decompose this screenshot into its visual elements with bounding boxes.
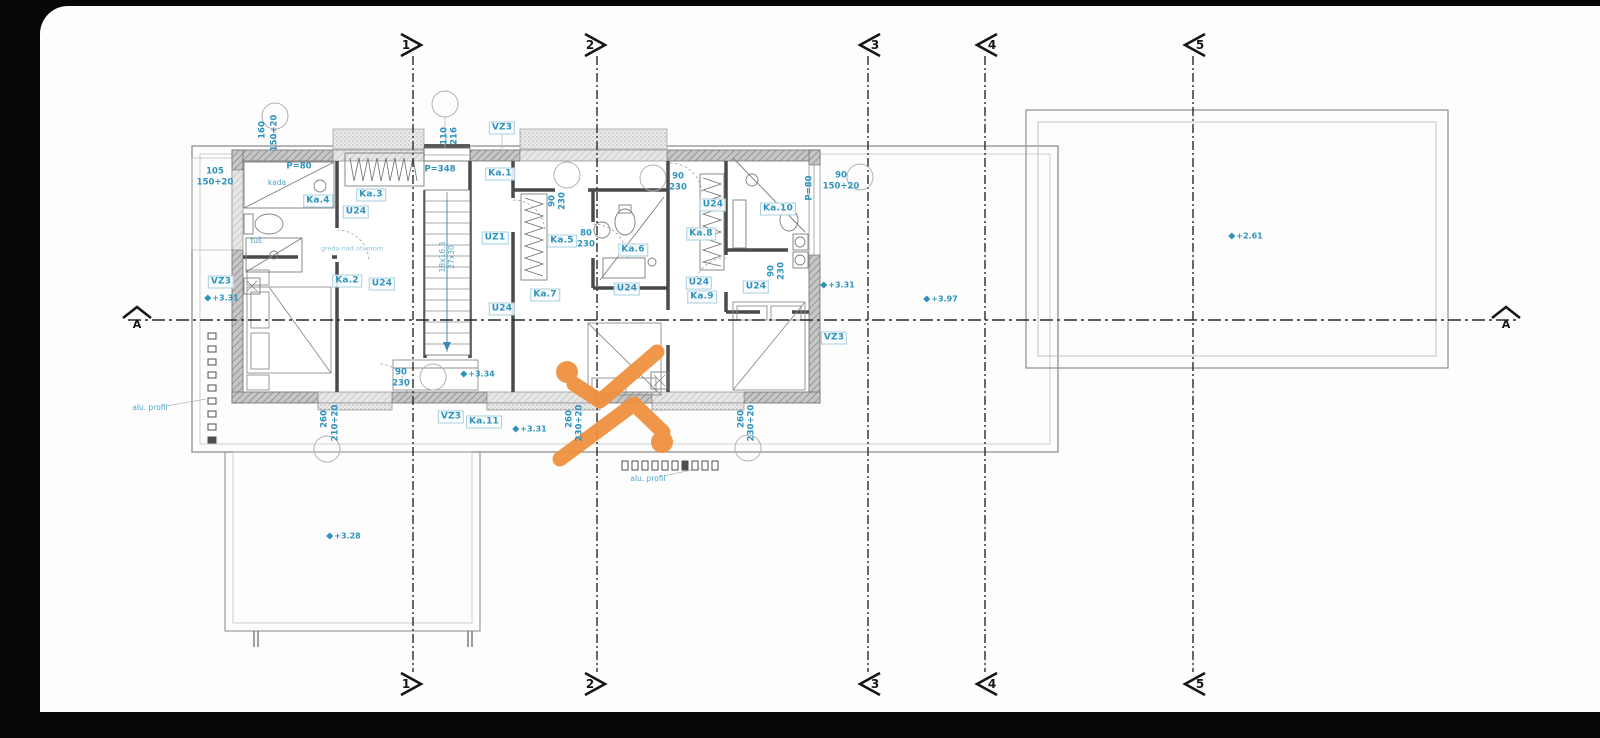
grid-axis-label: 2 [586,677,594,691]
canopy-hatch [520,129,667,149]
terrace-lower [225,452,480,647]
screenshot-canvas: 1122334455AA Ka.4Ka.3U24Ka.2U24VZ3Ka.1VZ… [0,0,1600,738]
grid-axis-label: 1 [402,38,410,52]
building [166,117,820,476]
pool-outline [1026,110,1448,368]
entry-door [424,144,470,161]
grid-axis-label: 5 [1196,38,1204,52]
grid-axis-label: 5 [1196,677,1204,691]
grid-axis-label: 4 [988,38,996,52]
grid-axis-label: 3 [871,677,879,691]
reference-bubble [735,435,761,461]
section-axis-label: A [133,318,142,331]
reference-bubble [314,436,340,462]
grid-axis-label: 3 [871,38,879,52]
section-axis-marker [1492,307,1520,318]
grid-axis-label: 2 [586,38,594,52]
canopy-hatch [333,129,424,149]
section-axis-label: A [1502,318,1511,331]
reference-bubble [432,91,458,117]
staircase [425,190,470,355]
grid-axis-label: 1 [402,677,410,691]
section-axis-marker [123,307,151,318]
floor-plan-drawing: 1122334455AA [0,0,1600,738]
reference-bubble [847,164,873,190]
reference-bubble [262,103,288,129]
grid-axis-label: 4 [988,677,996,691]
